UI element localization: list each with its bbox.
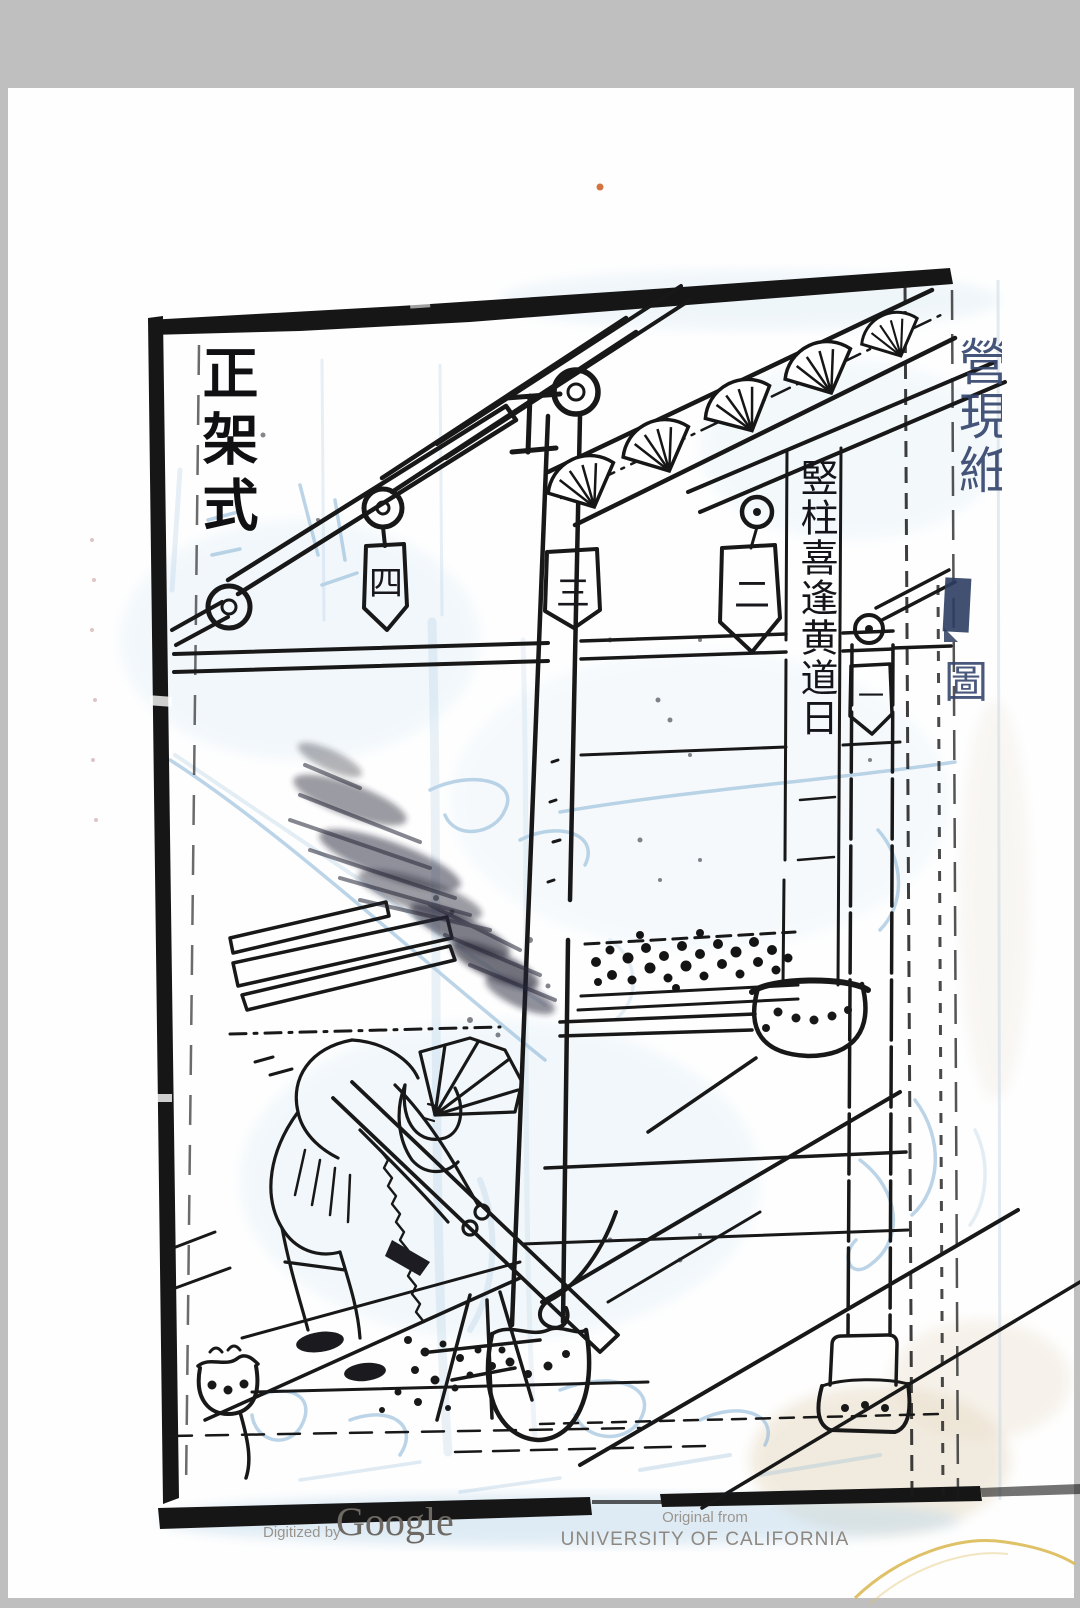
edge-running-title: 營現絍: [944, 336, 1002, 498]
page-edge-clip: 營現絍 圖: [0, 0, 1002, 1608]
figure-title: 正架式: [186, 344, 267, 542]
tag-label-4: 四: [362, 556, 410, 605]
original-from-label: Original from: [555, 1509, 855, 1526]
google-wordmark: Google: [336, 1498, 454, 1545]
tag-label-1: 一: [848, 676, 894, 713]
pillar-caption: 竪柱喜逢黄道日: [789, 458, 844, 738]
institution-label: UNIVERSITY OF CALIFORNIA: [530, 1529, 880, 1551]
edge-boxed-char: 圖: [944, 646, 988, 710]
tag-label-2: 二: [726, 566, 778, 618]
scanned-book-page: 正架式 竪柱喜逢黄道日 四 三 二 一 營現絍 圖 Digitized by G…: [0, 0, 1080, 1608]
digitized-by-label: Digitized by: [263, 1524, 341, 1541]
tag-label-3: 三: [548, 566, 598, 615]
